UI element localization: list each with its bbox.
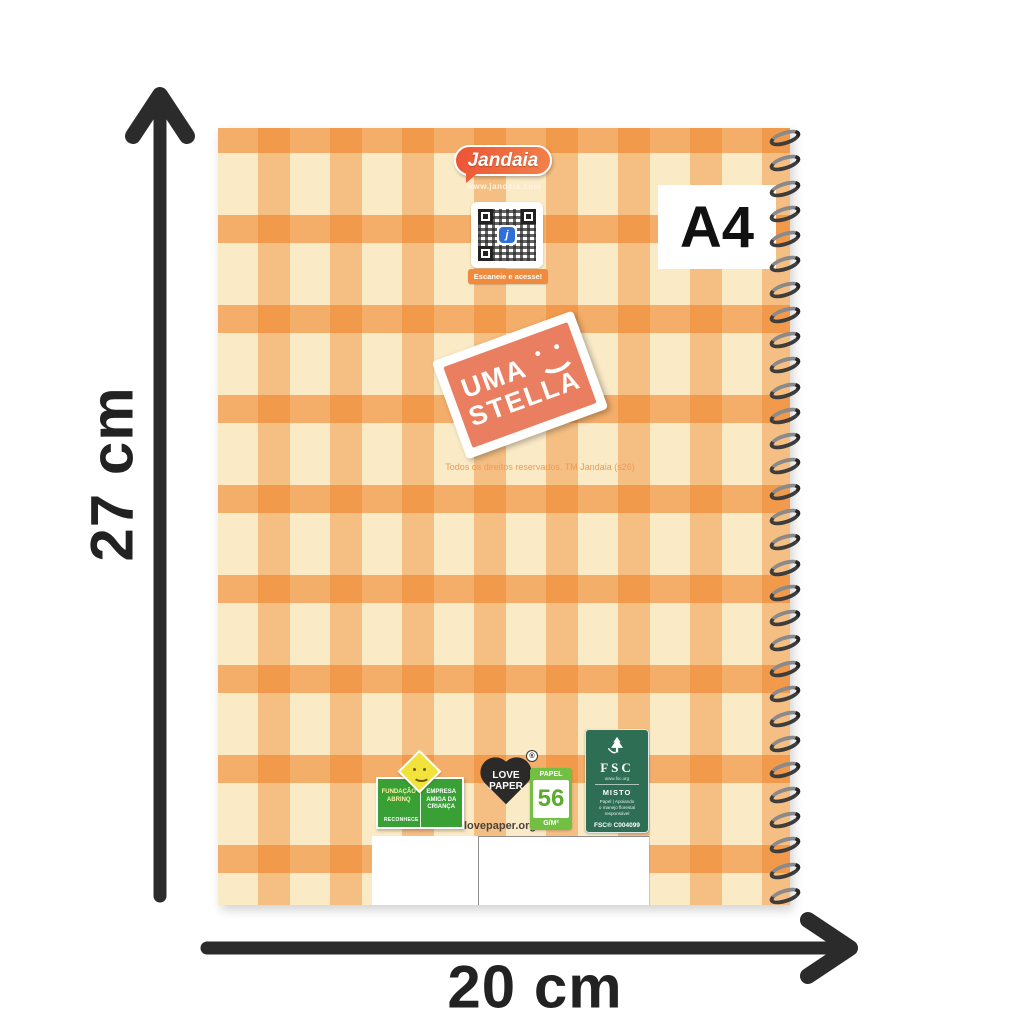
spiral-loop-icon [768,329,803,352]
paper-weight-value: 56 [533,780,569,818]
spiral-loop-icon [768,152,803,175]
spiral-loop-icon [768,278,803,301]
spiral-loop-icon [768,202,803,225]
spiral-loop-icon [768,657,803,680]
spiral-loop-icon [768,733,803,756]
abrinq-footer: RECONHECE [384,817,419,823]
paper-weight-badge: PAPEL 56 G/M² [530,768,572,830]
qr-caption: Escaneie e acesse! [468,269,548,284]
copyright-text: Todos os direitos reservados. TM Jandaia… [390,462,690,472]
spiral-loop-icon [768,783,803,806]
blank-label-left [372,836,479,905]
spiral-loop-icon [768,809,803,832]
spiral-loop-icon [768,354,803,377]
abrinq-col1-line2: ABRINQ [378,797,420,805]
abrinq-col2-line2: AMIGA DA [421,797,463,805]
spiral-loop-icon [768,556,803,579]
blank-label-right [479,836,649,905]
spiral-loop-icon [768,708,803,731]
abrinq-col2-line3: CRIANÇA [421,804,463,812]
fsc-category: MISTO [603,788,632,797]
spiral-loop-icon [768,430,803,453]
love-paper-line2: PAPER [476,781,536,792]
spiral-binding [764,131,806,903]
jandaia-j-icon: j [499,227,515,243]
size-badge: A4 [658,185,776,269]
qr-code: j [471,202,543,268]
paper-weight-label: PAPEL [533,771,569,778]
spiral-loop-icon [768,455,803,478]
spiral-loop-icon [768,253,803,276]
fsc-license-code: FSC® C004099 [594,822,640,829]
height-dimension-label: 27 cm [78,386,147,561]
spiral-loop-icon [768,606,803,629]
fsc-tree-icon [606,735,628,759]
spiral-loop-icon [768,480,803,503]
abrinq-face [406,758,433,785]
paper-weight-unit: G/M² [533,820,569,827]
qr-finder-icon [521,209,536,224]
product-image: 27 cm 20 cm Jandaia www.jandaia.com j Es… [0,0,1024,1024]
spiral-loop-icon [768,834,803,857]
qr-center-badge: j [497,225,517,245]
fsc-acronym: FSC [600,760,634,776]
size-badge-text: A4 [680,194,754,261]
notebook-cover: Jandaia www.jandaia.com j Escaneie e ace… [218,128,790,905]
abrinq-col1-line1: FUNDAÇÃO [378,789,420,797]
spiral-loop-icon [768,303,803,326]
fsc-desc-line3: responsável [599,811,635,817]
spiral-loop-icon [768,632,803,655]
spiral-loop-icon [768,404,803,427]
spiral-loop-icon [768,758,803,781]
abrinq-col2-line1: EMPRESA [421,789,463,797]
fsc-divider [595,784,640,785]
brand-website: www.jandaia.com [448,182,560,191]
spiral-loop-icon [768,379,803,402]
brand-name: Jandaia [468,150,539,172]
spiral-loop-icon [768,505,803,528]
spiral-loop-icon [768,177,803,200]
qr-finder-icon [478,246,493,261]
brand-logo: Jandaia [454,145,552,176]
spiral-loop-icon [768,859,803,882]
qr-finder-icon [478,209,493,224]
uma-stella-stamp: UMA STELLA [432,310,609,459]
spiral-loop-icon [768,581,803,604]
qr-pattern: j [478,209,536,261]
spiral-loop-icon [768,682,803,705]
spiral-loop-icon [768,227,803,250]
abrinq-badge: FUNDAÇÃO ABRINQ EMPRESA AMIGA DA CRIANÇA… [376,760,464,832]
fsc-website: www.fsc.org [605,776,629,781]
registered-trademark-icon: ® [526,750,538,762]
width-dimension-label: 20 cm [447,953,622,1022]
fsc-badge: FSC www.fsc.org MISTO Papel | Apoiando o… [585,729,649,833]
love-paper-line1: LOVE [476,770,536,781]
spiral-loop-icon [768,531,803,554]
stamp-inner: UMA STELLA [443,322,596,448]
